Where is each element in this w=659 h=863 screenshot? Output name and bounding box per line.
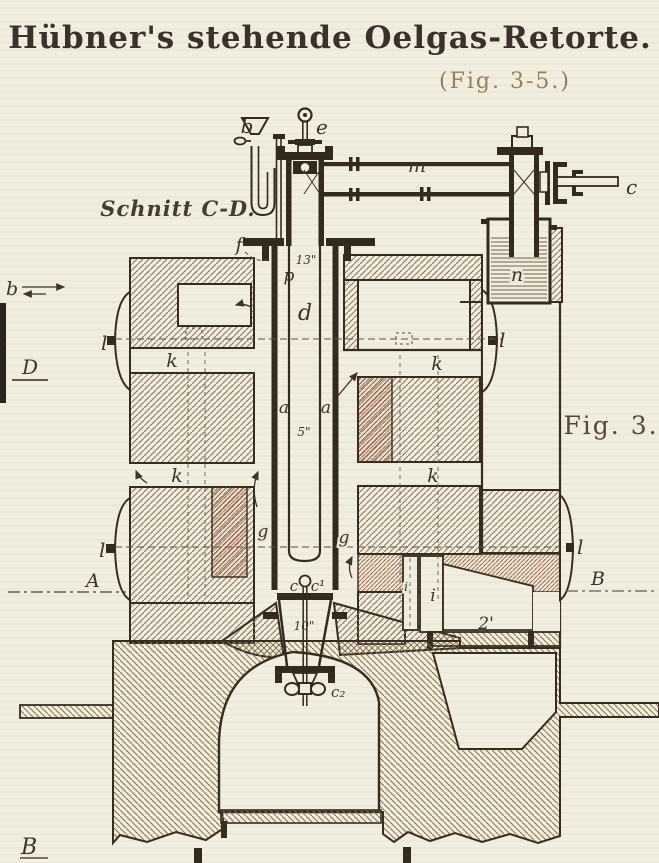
plate-edge-bar: [0, 303, 6, 403]
head-flange-left: [243, 238, 284, 246]
masonry-left-mid: [130, 373, 254, 463]
grate-stub-right: [403, 847, 411, 863]
label-l-left-upper: l: [101, 331, 107, 355]
label-valve-e: e: [316, 115, 328, 139]
section-caption: Schnitt C-D.: [100, 196, 255, 221]
label-annulus-a-right: a: [321, 398, 331, 418]
valve-spindle: [557, 177, 618, 186]
label-k-right-upper: k: [431, 353, 443, 375]
label-sec-A: A: [84, 570, 100, 592]
pot-lug-right: [549, 225, 557, 230]
label-dim-2ft: 2': [477, 614, 494, 634]
label-k-right-lower: k: [427, 465, 439, 487]
dip-pipe-bore: [514, 210, 534, 255]
label-k-left-lower: k: [171, 465, 183, 487]
retort-drawing: Hübner's stehende Oelgas-Retorte. (Fig. …: [0, 0, 659, 863]
feed-pipe-cap: [273, 134, 285, 139]
pot-lug-left: [481, 219, 489, 224]
ground-slab-left: [20, 705, 113, 718]
label-l-right-upper: l: [499, 328, 505, 352]
grate-stub-left: [194, 848, 202, 863]
label-annulus-a-left: a: [279, 398, 289, 418]
label-pipe-m: m: [408, 155, 426, 177]
valve-handwheel-hub: [303, 113, 307, 117]
pipe-cap-top: [517, 127, 528, 137]
engraving-plate: Hübner's stehende Oelgas-Retorte. (Fig. …: [0, 0, 659, 863]
label-dim-10: 10": [294, 619, 315, 633]
retort-wall-left: [272, 246, 278, 590]
page-title: Hübner's stehende Oelgas-Retorte.: [8, 20, 652, 56]
label-i-right: i: [430, 586, 435, 606]
label-valve-c-bottom: c: [290, 577, 299, 595]
label-g-right: g: [339, 528, 350, 548]
masonry-outer-wall-lower: [482, 490, 560, 553]
masonry-right-lower: [358, 486, 480, 554]
cone-flange-bottom: [275, 666, 335, 673]
masonry-beside-tank: [550, 228, 562, 302]
label-screw-c2: c₂: [331, 683, 345, 701]
label-sec-D: D: [21, 355, 38, 379]
label-seal-pot-n: n: [511, 264, 523, 286]
label-dim-13: 13": [296, 253, 317, 267]
pipe-cap-block: [512, 136, 532, 148]
label-l-left-lower: l: [99, 538, 105, 562]
feed-cock: [235, 138, 246, 145]
label-sec-B: B: [590, 568, 605, 590]
dip-pipe-wall-right: [534, 155, 539, 257]
label-flow-b: b: [6, 278, 18, 300]
label-dim-5: 5": [297, 425, 310, 439]
masonry-right-top: [344, 255, 482, 280]
firebrick-right: [358, 377, 392, 462]
ball-valve: [300, 576, 311, 587]
head-wall-left: [286, 160, 292, 246]
label-sec-B-bottom: B: [20, 835, 37, 860]
white-gap: [533, 592, 560, 632]
head-wall-right: [319, 160, 325, 246]
label-k-left-upper: k: [166, 350, 178, 372]
figure-range: (Fig. 3-5.): [439, 69, 571, 94]
label-g-left: g: [258, 522, 269, 542]
label-feed-p: p: [284, 266, 295, 286]
figure-number: Fig. 3.: [563, 411, 658, 440]
label-funnel-b: b: [241, 114, 254, 138]
firebrick-left: [212, 487, 247, 577]
label-valve-c1: c¹: [311, 577, 325, 595]
head-flange-right: [326, 238, 375, 246]
label-l-right-lower: l: [577, 535, 583, 559]
dip-pipe-wall-left: [509, 155, 514, 257]
wing-nut-c2: [285, 683, 325, 695]
label-tube-d: d: [298, 301, 312, 326]
label-i-left: i: [404, 580, 408, 594]
label-valve-c: c: [626, 175, 637, 199]
